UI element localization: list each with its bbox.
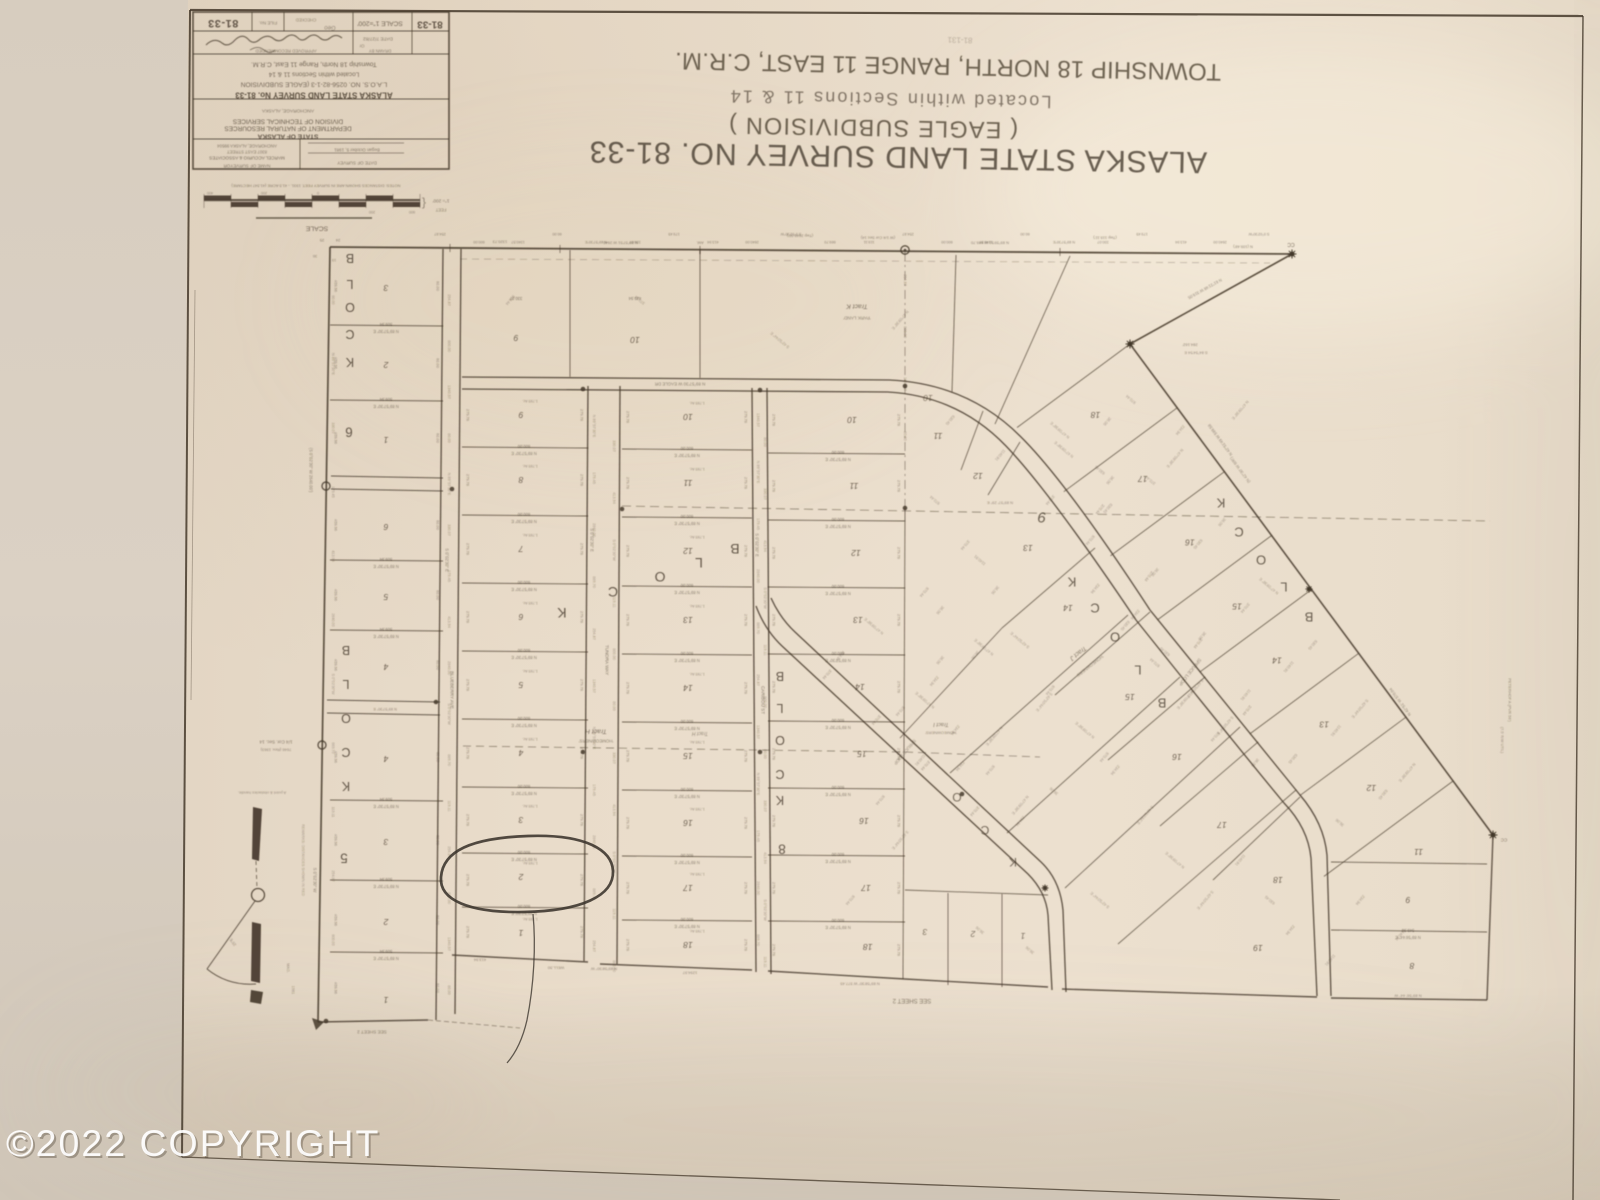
svg-text:15: 15 <box>857 749 867 759</box>
svg-text:O: O <box>1110 630 1120 645</box>
svg-text:S 0°02'30"W: S 0°02'30"W <box>1248 232 1269 236</box>
svg-text:279.78: 279.78 <box>466 679 471 691</box>
svg-text:60.00: 60.00 <box>436 358 441 369</box>
svg-text:10: 10 <box>923 393 933 403</box>
svg-text:279.78: 279.78 <box>744 750 749 762</box>
svg-text:12: 12 <box>1366 783 1376 793</box>
svg-text:600.00: 600.00 <box>831 718 844 723</box>
svg-text:S 0°02'30"W: S 0°02'30"W <box>763 899 767 921</box>
svg-text:1.785 Ac.: 1.785 Ac. <box>522 464 537 468</box>
svg-text:N 89°57'30" E: N 89°57'30" E <box>674 521 700 526</box>
svg-text:119.11: 119.11 <box>763 644 767 655</box>
svg-text:279.78: 279.78 <box>626 750 631 762</box>
svg-text:330.07: 330.07 <box>612 440 616 452</box>
svg-text:1294.97: 1294.97 <box>682 971 697 976</box>
svg-text:179.45: 179.45 <box>756 830 760 842</box>
svg-text:18: 18 <box>1273 875 1283 885</box>
svg-text:600: 600 <box>409 210 415 214</box>
svg-text:CC: CC <box>1500 838 1507 843</box>
svg-text:1340.57: 1340.57 <box>756 725 760 739</box>
svg-text:279.78: 279.78 <box>626 411 631 423</box>
svg-text:60.00: 60.00 <box>436 915 441 926</box>
svg-text:K: K <box>557 605 567 621</box>
svg-text:509.94: 509.94 <box>379 627 392 632</box>
svg-text:600.00: 600.00 <box>517 512 530 517</box>
svg-text:DATE 7/27/82: DATE 7/27/82 <box>363 36 393 42</box>
svg-text:81-131: 81-131 <box>947 35 973 45</box>
svg-text:N 89°57'30" E: N 89°57'30" E <box>825 725 851 730</box>
svg-text:K: K <box>341 779 350 793</box>
svg-text:N 89°57'30" E: N 89°57'30" E <box>674 453 700 458</box>
svg-text:A point & obstacles handle.: A point & obstacles handle. <box>238 791 286 796</box>
svg-text:1340.57: 1340.57 <box>511 240 524 244</box>
svg-text:6: 6 <box>345 425 353 440</box>
svg-text:13: 13 <box>1319 719 1329 729</box>
svg-text:Township 18 North, Range 11 Ea: Township 18 North, Range 11 East, C.R.M. <box>251 61 377 68</box>
svg-text:1: 1 <box>1020 931 1025 941</box>
svg-text:279.78: 279.78 <box>772 480 777 492</box>
svg-text:L: L <box>695 555 703 571</box>
svg-text:279.78: 279.78 <box>897 815 902 827</box>
svg-text:119.11: 119.11 <box>864 240 875 244</box>
svg-text:279.78: 279.78 <box>897 681 902 693</box>
svg-text:60.00: 60.00 <box>436 433 441 444</box>
svg-text:K: K <box>1067 575 1076 590</box>
svg-text:1: 1 <box>383 995 388 1005</box>
svg-text:279.78: 279.78 <box>897 547 902 559</box>
svg-text:(W 1/4 Cor Sec 14): (W 1/4 Cor Sec 14) <box>860 236 895 241</box>
svg-text:C: C <box>345 327 354 341</box>
svg-text:3: 3 <box>383 283 388 293</box>
svg-text:413.94: 413.94 <box>763 852 767 864</box>
svg-text:279.78: 279.78 <box>580 611 585 623</box>
svg-text:11: 11 <box>1414 847 1423 857</box>
svg-text:N 89°57'30" E: N 89°57'30" E <box>373 956 399 961</box>
svg-text:600.00: 600.00 <box>831 918 844 923</box>
svg-text:Or: Or <box>359 44 365 49</box>
svg-text:S 0°02'30"W: S 0°02'30"W <box>780 232 801 236</box>
svg-text:279.78: 279.78 <box>772 815 777 827</box>
svg-text:669.70: 669.70 <box>756 934 760 946</box>
svg-text:1.785 Ac.: 1.785 Ac. <box>522 601 537 605</box>
svg-text:O: O <box>1256 553 1266 568</box>
svg-text:DRAWN BY: DRAWN BY <box>369 49 392 54</box>
svg-text:279.78: 279.78 <box>626 939 631 951</box>
svg-text:N 89°57'30" E: N 89°57'30" E <box>825 524 851 529</box>
svg-text:279.78: 279.78 <box>626 817 631 829</box>
svg-text:CHECKED: CHECKED <box>296 18 316 23</box>
svg-text:2: 2 <box>970 929 976 939</box>
svg-text:600.00: 600.00 <box>680 446 693 451</box>
svg-text:330.07: 330.07 <box>629 240 640 244</box>
svg-text:1340.57: 1340.57 <box>447 385 451 399</box>
svg-text:600.00: 600.00 <box>680 514 693 519</box>
svg-text:60.00: 60.00 <box>436 835 441 846</box>
svg-text:10: 10 <box>847 415 857 425</box>
svg-text:179.45: 179.45 <box>331 486 335 497</box>
svg-text:(7.5' R/W UTIL): (7.5' R/W UTIL) <box>1500 727 1504 754</box>
svg-text:N 89°58'30" W 577.45: N 89°58'30" W 577.45 <box>840 982 880 987</box>
svg-text:279.78: 279.78 <box>626 545 631 557</box>
svg-text:60.00: 60.00 <box>436 590 441 601</box>
svg-text:60.00: 60.00 <box>436 983 441 994</box>
svg-text:8: 8 <box>518 475 523 485</box>
svg-text:600.00: 600.00 <box>831 450 844 455</box>
svg-text:413.94: 413.94 <box>763 540 767 552</box>
svg-text:O: O <box>775 733 785 747</box>
svg-text:ANCHORAGE, ALASKA: ANCHORAGE, ALASKA <box>261 108 314 114</box>
svg-text:1340.57: 1340.57 <box>592 679 596 693</box>
svg-text:25: 25 <box>320 238 324 242</box>
svg-text:8307 EAST STREET: 8307 EAST STREET <box>227 150 267 155</box>
svg-text:13: 13 <box>683 615 693 625</box>
svg-text:669.70: 669.70 <box>592 576 596 588</box>
svg-text:279.78: 279.78 <box>466 611 471 623</box>
svg-text:APPROVED RECOMMENDED: APPROVED RECOMMENDED <box>256 49 317 54</box>
svg-text:16: 16 <box>1185 538 1195 548</box>
svg-text:N 89°57'30" E: N 89°57'30" E <box>674 658 700 663</box>
svg-text:459.96: 459.96 <box>334 834 339 846</box>
svg-text:2640.00: 2640.00 <box>331 613 335 626</box>
svg-text:279.78: 279.78 <box>580 679 585 691</box>
svg-text:459.96: 459.96 <box>334 751 339 763</box>
svg-text:13: 13 <box>853 615 863 625</box>
svg-text:1320.73: 1320.73 <box>492 240 507 245</box>
svg-text:NOTES: DISTANCES SHOWN ARE IN: NOTES: DISTANCES SHOWN ARE IN SURVEY FEE… <box>231 184 401 189</box>
svg-text:8: 8 <box>1409 961 1414 971</box>
svg-text:N 89°57'30"E: N 89°57'30"E <box>592 727 596 750</box>
svg-text:N 89°57'30" E: N 89°57'30" E <box>674 860 700 865</box>
svg-text:279.78: 279.78 <box>772 614 777 626</box>
svg-text:19: 19 <box>1253 943 1263 953</box>
svg-text:DIVISION OF TECHNICAL SERVICES: DIVISION OF TECHNICAL SERVICES <box>233 118 343 125</box>
svg-text:C: C <box>1234 525 1243 540</box>
svg-text:N 89°57'30"E: N 89°57'30"E <box>756 461 760 484</box>
svg-text:TUNDRA WAY: TUNDRA WAY <box>605 645 610 675</box>
svg-text:STATE OF ALASKA: STATE OF ALASKA <box>257 133 318 140</box>
svg-text:14: 14 <box>1272 656 1282 666</box>
svg-text:7646 (Rev. 1963): 7646 (Rev. 1963) <box>260 748 291 753</box>
svg-text:669.70: 669.70 <box>824 240 835 244</box>
svg-text:1.785 Ac.: 1.785 Ac. <box>689 740 704 744</box>
svg-text:4: 4 <box>518 748 523 758</box>
svg-text:60.00: 60.00 <box>447 433 451 443</box>
svg-text:600.00: 600.00 <box>680 583 693 588</box>
svg-text:SEE SHEET 2: SEE SHEET 2 <box>892 997 931 1003</box>
svg-text:14: 14 <box>683 683 693 693</box>
svg-text:N 89°57'30" E: N 89°57'30" E <box>825 457 851 462</box>
svg-text:N 89°57'30" E: N 89°57'30" E <box>674 794 700 799</box>
svg-text:254.87: 254.87 <box>434 232 445 236</box>
svg-text:SEE SHEET 2: SEE SHEET 2 <box>357 1030 387 1035</box>
svg-text:B: B <box>342 643 350 657</box>
svg-text:600.00: 600.00 <box>680 719 693 724</box>
svg-text:279.78: 279.78 <box>744 411 749 423</box>
svg-text:600.00: 600.00 <box>517 580 530 585</box>
svg-text:413.94: 413.94 <box>612 804 616 816</box>
svg-text:459.96: 459.96 <box>334 357 339 369</box>
svg-text:279.78: 279.78 <box>897 882 902 894</box>
svg-text:1"= 200': 1"= 200' <box>433 199 450 204</box>
svg-text:16: 16 <box>683 818 693 828</box>
svg-text:ANCHORAGE, ALASKA 99504: ANCHORAGE, ALASKA 99504 <box>217 144 277 149</box>
svg-text:L.A.O.S. NO. 0256-82-1-3 (EAGL: L.A.O.S. NO. 0256-82-1-3 (EAGLE SUBDIVIS… <box>240 81 387 88</box>
svg-text:N 89°57'30" E: N 89°57'30" E <box>511 655 537 660</box>
svg-text:8: 8 <box>778 842 786 857</box>
svg-text:279.78: 279.78 <box>744 682 749 694</box>
svg-text:600.00: 600.00 <box>517 784 530 789</box>
svg-text:254.87: 254.87 <box>447 294 451 306</box>
svg-text:600.00: 600.00 <box>517 904 530 909</box>
svg-text:1.785 Ac.: 1.785 Ac. <box>522 533 537 537</box>
svg-text:N 89°57'30" E: N 89°57'30" E <box>674 726 700 731</box>
svg-text:279.78: 279.78 <box>466 409 471 421</box>
svg-text:279.78: 279.78 <box>897 944 902 956</box>
svg-text:C: C <box>1090 601 1099 616</box>
svg-text:C: C <box>775 767 784 781</box>
svg-text:279.78: 279.78 <box>580 474 585 486</box>
svg-text:2640.00: 2640.00 <box>447 661 451 675</box>
svg-text:279.78: 279.78 <box>466 874 471 886</box>
svg-text:2640.00: 2640.00 <box>592 523 596 537</box>
svg-text:S 0°02'30"W: S 0°02'30"W <box>763 587 767 609</box>
svg-text:119.11: 119.11 <box>331 807 335 818</box>
svg-text:S 0°02'30"W: S 0°02'30"W <box>331 674 335 695</box>
svg-text:L: L <box>776 701 783 715</box>
svg-text:4: 4 <box>383 754 388 764</box>
svg-text:N 89°57' 29" E: N 89°57' 29" E <box>987 501 1013 506</box>
svg-text:1.785 Ac.: 1.785 Ac. <box>522 861 537 865</box>
svg-text:NAME OF SURVEYOR: NAME OF SURVEYOR <box>223 164 271 169</box>
svg-text:}: } <box>422 195 426 209</box>
svg-text:279.78: 279.78 <box>772 681 777 693</box>
svg-text:279.78: 279.78 <box>580 543 585 555</box>
svg-text:S 0°02'30" E: S 0°02'30" E <box>445 548 450 572</box>
svg-text:413.94: 413.94 <box>612 492 616 504</box>
svg-text:1.785 Ac.: 1.785 Ac. <box>689 535 704 539</box>
svg-text:9: 9 <box>1037 509 1046 526</box>
svg-text:600.00: 600.00 <box>680 853 693 858</box>
svg-text:279.78: 279.78 <box>772 944 777 956</box>
svg-text:C: C <box>341 745 350 759</box>
svg-text:2640.00: 2640.00 <box>1213 240 1226 244</box>
svg-text:24: 24 <box>336 238 340 242</box>
svg-text:279.78: 279.78 <box>626 682 631 694</box>
svg-text:279.78: 279.78 <box>772 882 777 894</box>
svg-text:279.78: 279.78 <box>580 874 585 886</box>
svg-text:119.11: 119.11 <box>612 596 616 607</box>
svg-text:ALASKA STATE LAND SURVEY No. 8: ALASKA STATE LAND SURVEY No. 81-33 <box>235 91 393 100</box>
svg-text:279.78: 279.78 <box>772 547 777 559</box>
svg-text:119.11: 119.11 <box>447 800 451 811</box>
svg-text:L: L <box>1280 580 1287 595</box>
svg-text:1.785 Ac.: 1.785 Ac. <box>689 872 704 876</box>
svg-text:CC: CC <box>1287 241 1295 247</box>
svg-text:279.78: 279.78 <box>744 477 749 489</box>
svg-text:FEET: FEET <box>435 208 446 213</box>
svg-text:©2022 COPYRIGHT: ©2022 COPYRIGHT <box>6 1122 380 1164</box>
svg-text:60.00: 60.00 <box>763 437 767 447</box>
svg-text:DATE OF SURVEY: DATE OF SURVEY <box>337 161 377 166</box>
svg-text:279.78: 279.78 <box>580 926 585 938</box>
svg-text:600.00: 600.00 <box>831 584 844 589</box>
svg-text:600.00: 600.00 <box>941 240 952 244</box>
svg-text:14: 14 <box>1063 603 1073 613</box>
svg-text:N 89°57'30" E: N 89°57'30" E <box>825 859 851 864</box>
svg-text:279.78: 279.78 <box>466 926 471 938</box>
svg-text:SCALE 1"=200': SCALE 1"=200' <box>357 20 403 27</box>
svg-text:16: 16 <box>859 816 869 826</box>
svg-text:459.96: 459.96 <box>334 519 339 531</box>
svg-text:284.162': 284.162' <box>1182 343 1197 348</box>
svg-text:1340.57: 1340.57 <box>903 377 907 391</box>
svg-text:7: 7 <box>518 544 523 554</box>
svg-text:459.96: 459.96 <box>334 589 339 601</box>
svg-text:1: 1 <box>383 435 388 445</box>
svg-text:3: 3 <box>383 837 388 847</box>
svg-text:1.785 Ac.: 1.785 Ac. <box>522 669 537 673</box>
svg-text:18: 18 <box>1091 410 1101 420</box>
svg-text:254.87: 254.87 <box>592 940 596 952</box>
svg-text:FILE No.: FILE No. <box>259 21 277 26</box>
svg-text:179.45: 179.45 <box>1136 232 1147 236</box>
svg-text:254.87: 254.87 <box>756 674 760 686</box>
svg-text:279.78: 279.78 <box>744 882 749 894</box>
svg-text:200: 200 <box>261 191 267 195</box>
svg-text:16: 16 <box>1172 752 1182 762</box>
svg-text:O: O <box>345 300 355 314</box>
svg-text:4: 4 <box>383 662 388 672</box>
svg-text:1.785 Ac.: 1.785 Ac. <box>689 604 704 608</box>
svg-text:N 89°57'30"E: N 89°57'30"E <box>447 473 451 496</box>
svg-text:(Twp 119.11'): (Twp 119.11') <box>1093 236 1117 241</box>
svg-text:279.78: 279.78 <box>744 614 749 626</box>
svg-text:Tract I: Tract I <box>933 721 949 727</box>
svg-text:B: B <box>776 669 784 683</box>
svg-text:1.785 Ac.: 1.785 Ac. <box>522 399 537 403</box>
svg-text:N 89°57'30" E: N 89°57'30" E <box>825 925 851 930</box>
svg-text:279.78: 279.78 <box>466 474 471 486</box>
svg-text:459.96: 459.96 <box>334 659 339 671</box>
svg-text:N 89°57'30" E: N 89°57'30" E <box>373 884 399 889</box>
svg-text:279.78: 279.78 <box>744 545 749 557</box>
svg-text:600.00: 600.00 <box>612 960 616 972</box>
svg-text:1.785 Ac.: 1.785 Ac. <box>522 804 537 808</box>
svg-text:N 89°57'30" E: N 89°57'30" E <box>511 723 537 728</box>
svg-text:60.00: 60.00 <box>552 232 561 236</box>
svg-text:N 89°57'30" E: N 89°57'30" E <box>511 587 537 592</box>
svg-text:Geo: Geo <box>324 24 336 30</box>
svg-text:459.96: 459.96 <box>334 914 339 926</box>
svg-text:S 0°02'30"W: S 0°02'30"W <box>447 703 451 725</box>
svg-text:1340.57: 1340.57 <box>979 240 992 244</box>
svg-text:279.78: 279.78 <box>626 477 631 489</box>
svg-text:459.96: 459.96 <box>334 982 339 994</box>
svg-text:N (109.48'): N (109.48') <box>1233 245 1253 250</box>
svg-text:Began October 5, 1981: Began October 5, 1981 <box>334 148 380 153</box>
svg-text:600.00: 600.00 <box>763 696 767 708</box>
svg-text:600.00: 600.00 <box>517 444 530 449</box>
svg-text:279.78: 279.78 <box>466 747 471 759</box>
svg-text:60.00: 60.00 <box>436 752 441 763</box>
svg-text:N 89°57'30" E: N 89°57'30" E <box>373 404 399 409</box>
svg-text:2: 2 <box>518 872 524 882</box>
svg-text:279.78: 279.78 <box>897 748 902 760</box>
svg-text:N 89°57'30"E: N 89°57'30"E <box>592 415 596 438</box>
svg-text:509.94: 509.94 <box>379 322 392 327</box>
svg-text:60.00: 60.00 <box>447 985 451 995</box>
svg-text:400: 400 <box>207 191 213 195</box>
svg-text:B: B <box>346 251 354 265</box>
svg-text:330.07: 330.07 <box>763 488 767 500</box>
svg-text:9: 9 <box>1405 895 1410 905</box>
svg-text:0: 0 <box>317 191 319 195</box>
svg-text:15: 15 <box>1232 602 1242 612</box>
svg-text:669.70: 669.70 <box>756 622 760 634</box>
svg-text:K: K <box>1009 855 1017 869</box>
svg-text:S 0°02'30"W: S 0°02'30"W <box>612 539 616 561</box>
svg-text:WELL.50: WELL.50 <box>547 966 564 971</box>
svg-text:509.94: 509.94 <box>379 557 392 562</box>
svg-text:279.78: 279.78 <box>626 882 631 894</box>
svg-text:N 89°57'30" E: N 89°57'30" E <box>825 792 851 797</box>
svg-text:PETERHOF A (PVR 56'): PETERHOF A (PVR 56') <box>1508 678 1513 722</box>
svg-text:REMARKS: DISTANCES SHOWN IN RE: REMARKS: DISTANCES SHOWN IN RED <box>301 824 305 896</box>
svg-text:459.96: 459.96 <box>334 280 339 292</box>
svg-text:2640.00: 2640.00 <box>745 240 758 244</box>
svg-text:11: 11 <box>933 431 942 441</box>
svg-text:S 0°02'30" E: S 0°02'30" E <box>755 533 760 557</box>
svg-text:17: 17 <box>861 883 871 893</box>
svg-text:179.45: 179.45 <box>592 784 596 796</box>
svg-text:1.785 Ac.: 1.785 Ac. <box>522 917 537 921</box>
svg-text:509.94: 509.94 <box>379 797 392 802</box>
svg-text:600.00: 600.00 <box>680 651 693 656</box>
svg-text:279.78: 279.78 <box>744 817 749 829</box>
svg-text:60.00: 60.00 <box>436 281 441 292</box>
svg-text:279.78: 279.78 <box>744 939 749 951</box>
svg-text:6: 6 <box>383 522 388 532</box>
svg-text:18: 18 <box>863 942 873 952</box>
svg-text:413.94: 413.94 <box>447 616 451 628</box>
svg-text:279.78: 279.78 <box>772 414 777 426</box>
svg-text:509.94: 509.94 <box>379 949 392 954</box>
svg-text:N 89°57'30" E: N 89°57'30" E <box>511 451 537 456</box>
svg-text:O: O <box>341 711 351 725</box>
svg-text:179.45: 179.45 <box>592 472 596 484</box>
svg-text:1.785 Ac.: 1.785 Ac. <box>522 737 537 741</box>
svg-text:600.00: 600.00 <box>831 517 844 522</box>
svg-text:279.78: 279.78 <box>897 414 902 426</box>
svg-text:5: 5 <box>340 851 348 866</box>
svg-text:(S 0°02'30" W 2640.00'): (S 0°02'30" W 2640.00') <box>309 448 314 493</box>
svg-text:254.87: 254.87 <box>903 274 907 286</box>
svg-text:15: 15 <box>683 751 693 761</box>
svg-text:9: 9 <box>518 410 523 420</box>
svg-text:3: 3 <box>922 927 927 937</box>
svg-text:L: L <box>346 277 353 291</box>
svg-text:N 89°57'30" E: N 89°57'30" E <box>825 591 851 596</box>
svg-text:AM.: AM. <box>696 241 703 246</box>
svg-text:O: O <box>654 569 665 585</box>
svg-text:L: L <box>1134 663 1141 678</box>
svg-text:C: C <box>980 823 989 837</box>
svg-text:B: B <box>730 541 739 557</box>
svg-text:N 89°57'30" E: N 89°57'30" E <box>511 791 537 796</box>
svg-text:MARCEL ACCURIO & ASSOCIATES: MARCEL ACCURIO & ASSOCIATES <box>209 156 285 161</box>
svg-text:81-33: 81-33 <box>417 19 443 30</box>
svg-text:17: 17 <box>683 883 693 893</box>
